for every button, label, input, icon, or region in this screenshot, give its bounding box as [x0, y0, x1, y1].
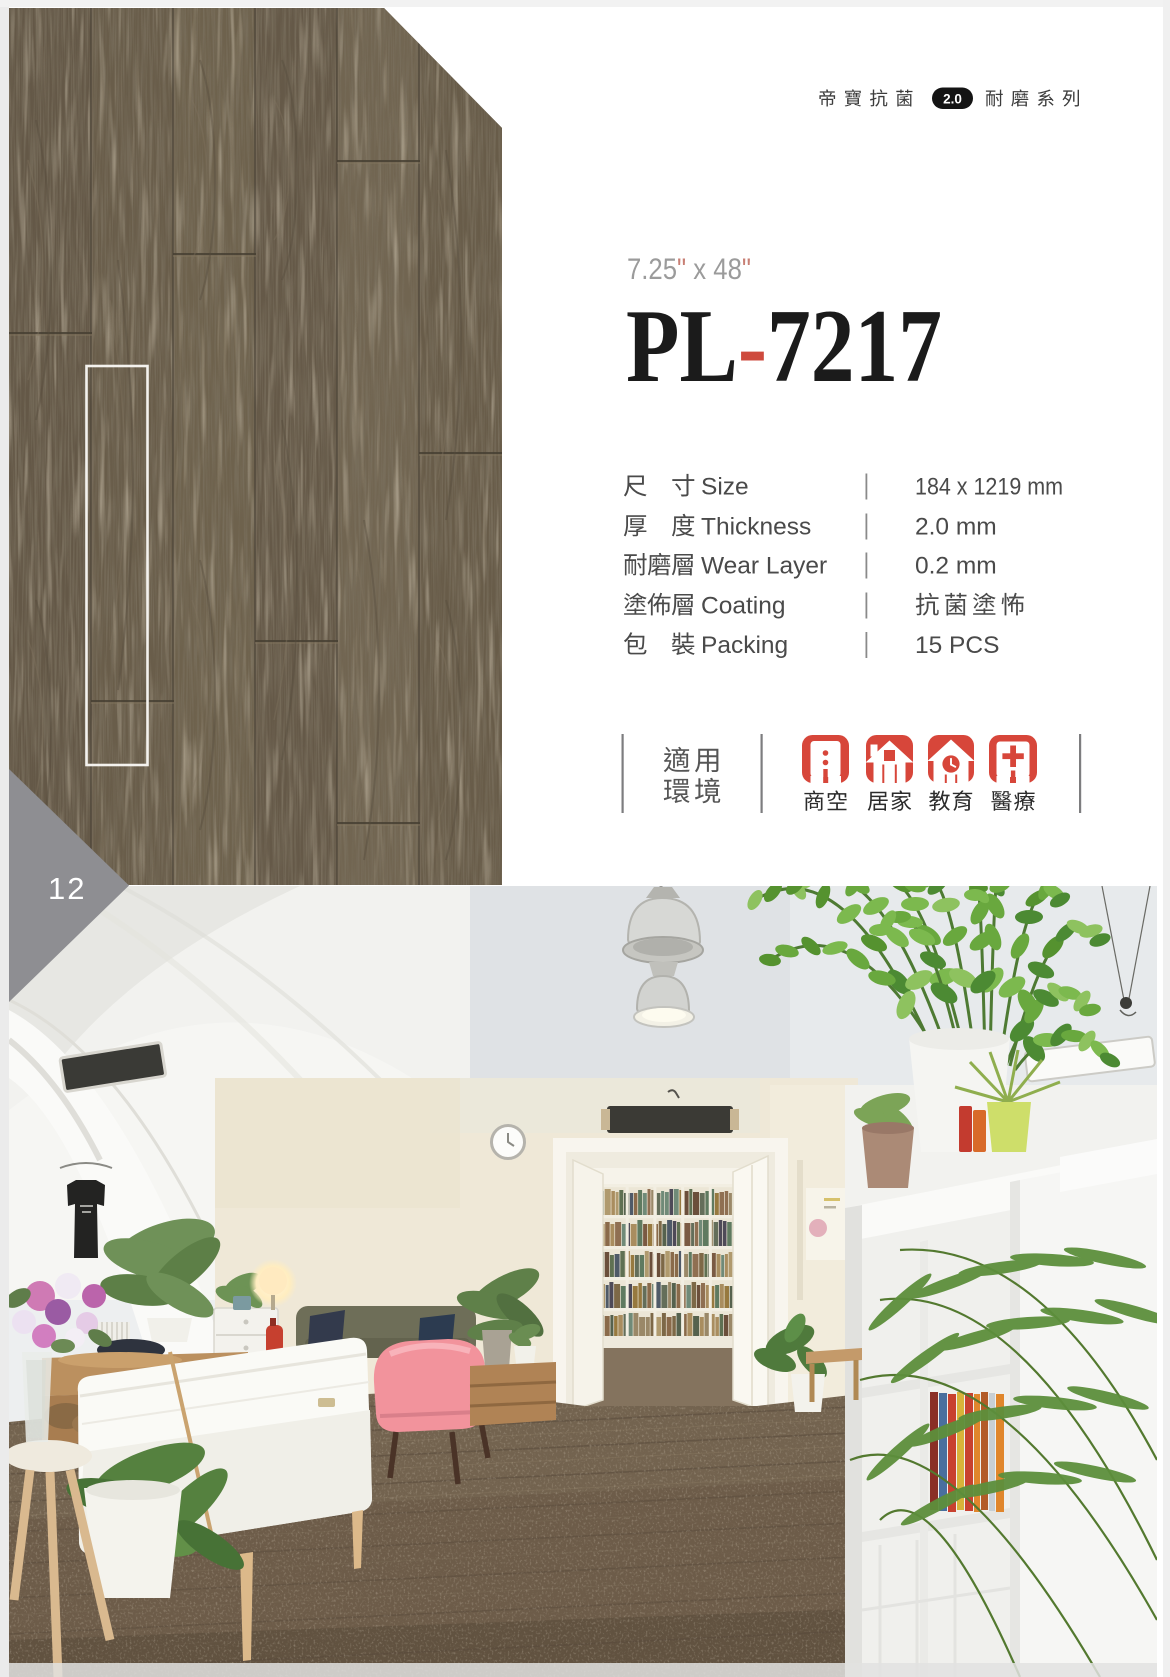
svg-text:12: 12: [48, 871, 86, 906]
svg-text:Size: Size: [701, 474, 749, 501]
svg-text:Wear Layer: Wear Layer: [701, 553, 827, 580]
svg-text:2.0: 2.0: [943, 92, 962, 107]
svg-text:15 PCS: 15 PCS: [915, 632, 999, 659]
svg-text:184 x 1219 mm: 184 x 1219 mm: [915, 474, 1063, 501]
svg-text:Packing: Packing: [701, 632, 788, 659]
svg-text:2.0 mm: 2.0 mm: [915, 514, 997, 541]
svg-text:Thickness: Thickness: [701, 514, 811, 541]
svg-text:PL-7217: PL-7217: [626, 287, 942, 404]
svg-text:Coating: Coating: [701, 593, 785, 620]
svg-text:0.2 mm: 0.2 mm: [915, 553, 997, 580]
svg-text:7.25" x 48": 7.25" x 48": [627, 253, 751, 286]
